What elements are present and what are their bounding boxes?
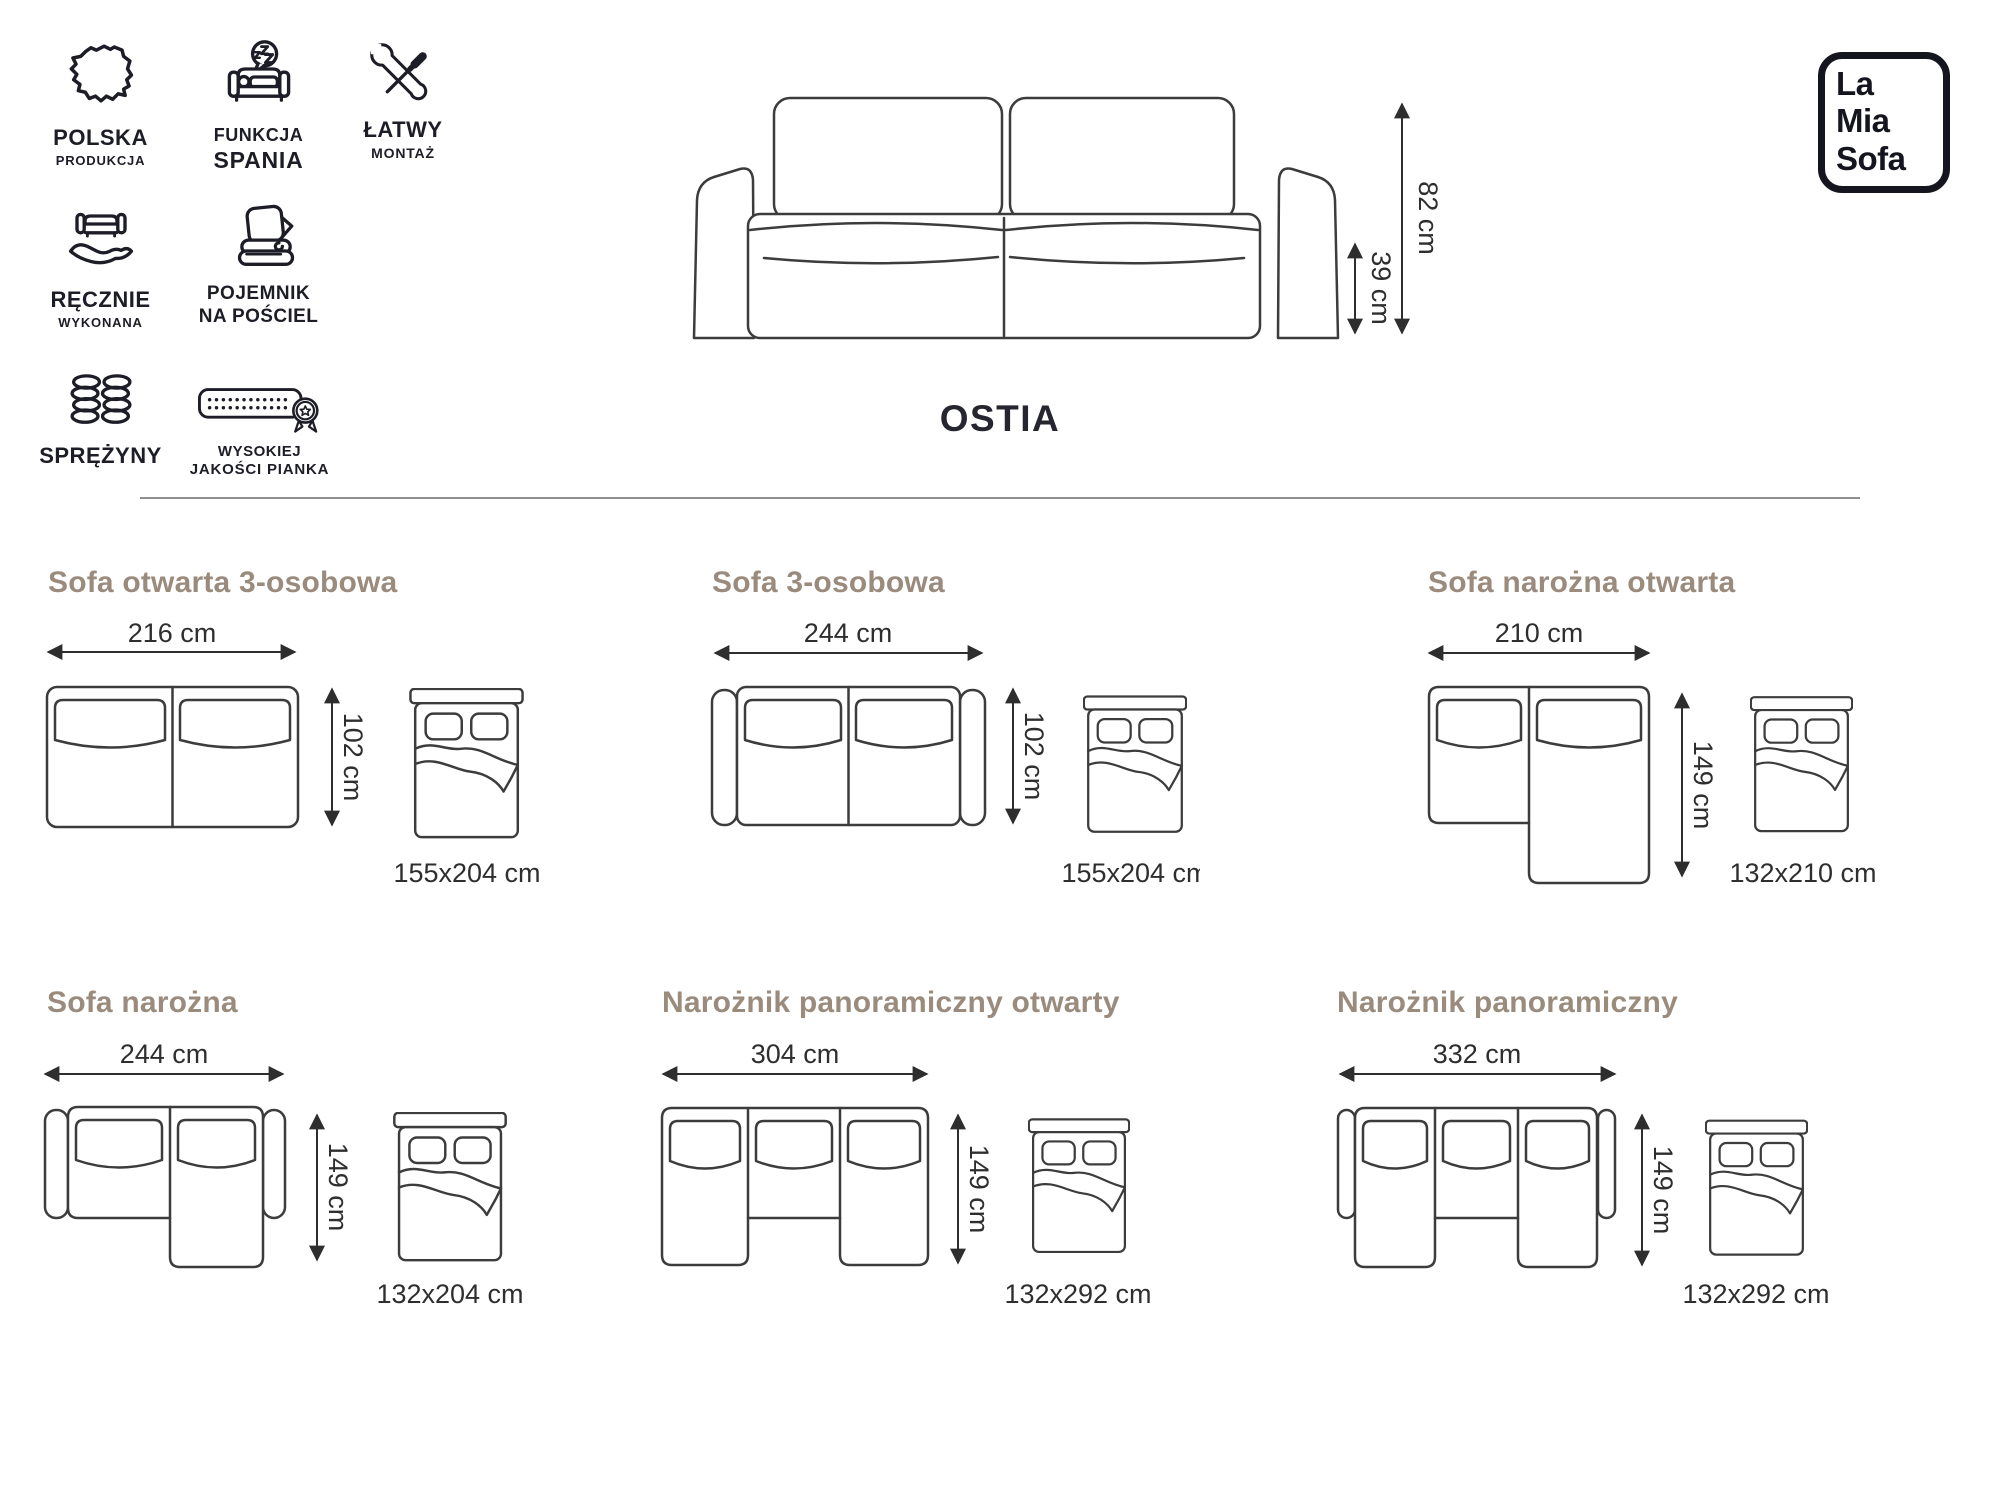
depth-label: 149 cm — [323, 1143, 353, 1232]
variant-title-1: Sofa otwarta 3-osobowa — [48, 566, 397, 600]
depth-label: 102 cm — [338, 713, 368, 802]
springs-icon — [63, 372, 139, 436]
badge-sublabel: PRODUKCJA — [28, 153, 173, 168]
badge-sublabel: JAKOŚCI PIANKA — [172, 461, 347, 478]
badge-recznie-wykonana: RĘCZNIE WYKONANA — [28, 200, 173, 330]
badge-sublabel: MONTAŻ — [343, 145, 463, 161]
bed-size-label: 132x204 cm — [376, 1279, 523, 1309]
badge-label: RĘCZNIE — [28, 287, 173, 313]
width-label: 216 cm — [128, 618, 217, 648]
variant-title-6: Narożnik panoramiczny — [1337, 986, 1678, 1020]
depth-label: 149 cm — [964, 1145, 994, 1234]
bed-size-label: 155x204 cm — [1061, 858, 1200, 888]
badge-sublabel: WYKONANA — [28, 315, 173, 330]
section-divider — [140, 497, 1860, 499]
depth-label: 149 cm — [1648, 1146, 1678, 1235]
variant-1-diagram: 216 cm 102 cm 155x204 cm — [30, 610, 540, 900]
panoramic-sofa-top-view — [1338, 1108, 1615, 1267]
badge-wysokiej-jakosci-pianka: WYSOKIEJ JAKOŚCI PIANKA — [172, 378, 347, 478]
width-label: 210 cm — [1495, 618, 1584, 648]
brand-logo-line: Sofa — [1836, 140, 1943, 177]
badge-label: POLSKA — [28, 125, 173, 151]
foam-quality-icon — [180, 378, 340, 436]
bed-icon — [1084, 697, 1186, 832]
brand-logo: La Mia Sofa — [1818, 52, 1950, 193]
bed-size-label: 132x210 cm — [1729, 858, 1876, 888]
bed-size-label: 155x204 cm — [393, 858, 540, 888]
badge-latwy-montaz: ŁATWY MONTAŻ — [343, 42, 463, 161]
badge-sublabel: SPANIA — [186, 147, 331, 174]
variant-6-diagram: 332 cm 149 cm 132x292 cm — [1325, 1030, 1835, 1330]
variant-5-diagram: 304 cm 149 cm 132x292 cm — [650, 1030, 1170, 1330]
badge-pojemnik-na-posciel: POJEMNIK NA POŚCIEL — [186, 198, 331, 328]
bed-size-label: 132x292 cm — [1004, 1279, 1151, 1309]
variant-title-5: Narożnik panoramiczny otwarty — [662, 986, 1120, 1020]
panoramic-sofa-top-view — [662, 1108, 928, 1265]
corner-sofa-top-view — [1429, 687, 1649, 883]
width-label: 332 cm — [1433, 1039, 1522, 1069]
bed-icon — [1706, 1121, 1807, 1255]
bed-icon — [1751, 697, 1852, 831]
width-label: 304 cm — [751, 1039, 840, 1069]
badge-label: POJEMNIK — [186, 283, 331, 305]
badge-label: WYSOKIEJ — [172, 443, 347, 460]
badge-label: SPRĘŻYNY — [28, 443, 173, 469]
badge-sprezyny: SPRĘŻYNY — [28, 372, 173, 469]
badge-funkcja-spania: FUNKCJA SPANIA — [186, 36, 331, 174]
variant-title-4: Sofa narożna — [47, 986, 238, 1020]
seat-height-label: 39 cm — [1366, 251, 1396, 325]
product-title: OSTIA — [680, 398, 1320, 440]
variant-title-3: Sofa narożna otwarta — [1428, 566, 1735, 600]
bedding-storage-icon — [219, 198, 299, 276]
badge-label: ŁATWY — [343, 117, 463, 143]
variant-4-diagram: 244 cm 149 cm 132x204 cm — [30, 1030, 540, 1330]
corner-sofa-top-view — [45, 1107, 285, 1267]
depth-label: 102 cm — [1019, 712, 1049, 801]
badge-label: FUNKCJA — [186, 125, 331, 146]
bed-size-label: 132x292 cm — [1682, 1279, 1829, 1309]
variant-2-diagram: 244 cm 102 cm 155x204 cm — [700, 610, 1200, 900]
variant-title-2: Sofa 3-osobowa — [712, 566, 945, 600]
sofa-top-view — [47, 687, 298, 827]
main-sofa-front-view-drawing: 39 cm 82 cm — [680, 88, 1460, 353]
variant-3-diagram: 210 cm 149 cm 132x210 cm — [1420, 610, 1890, 910]
depth-label: 149 cm — [1688, 741, 1718, 830]
badge-polska-produkcja: POLSKA PRODUKCJA — [28, 40, 173, 168]
badge-sublabel: NA POŚCIEL — [186, 306, 331, 328]
easy-assembly-icon — [368, 42, 438, 110]
brand-logo-line: La — [1836, 65, 1943, 102]
sofa-top-view — [712, 687, 985, 825]
width-label: 244 cm — [804, 618, 893, 648]
handmade-icon — [61, 200, 141, 280]
poland-map-icon — [60, 40, 142, 118]
brand-logo-line: Mia — [1836, 102, 1943, 139]
spec-sheet-page: { "page": { "title": "OSTIA" }, "brand":… — [0, 0, 2000, 1500]
bed-icon — [1029, 1119, 1129, 1252]
bed-icon — [410, 689, 522, 837]
total-height-label: 82 cm — [1413, 181, 1443, 255]
sleep-function-icon — [219, 36, 299, 118]
width-label: 244 cm — [120, 1039, 209, 1069]
bed-icon — [394, 1113, 505, 1260]
